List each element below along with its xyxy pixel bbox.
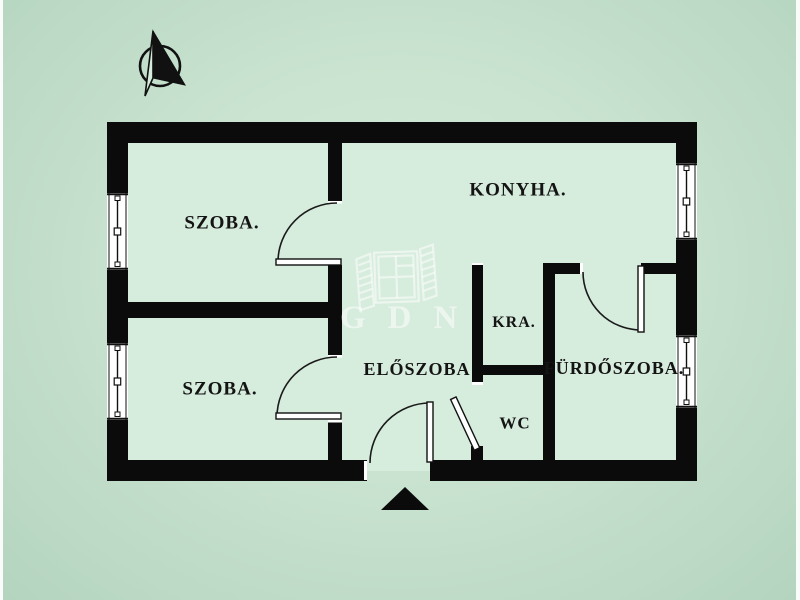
wall-hall-stub-c (328, 420, 342, 460)
image-edge-right (796, 0, 800, 600)
floorplan-image: SZOBA. KONYHA. KRA. ELŐSZOBA SZOBA. WC F… (0, 0, 800, 600)
wall-right-a (676, 122, 697, 163)
wall-cap (364, 461, 367, 480)
wall-bath-top-right (641, 263, 676, 274)
room-label-konyha: KONYHA. (469, 181, 566, 200)
floorplan-svg (0, 0, 800, 600)
wall-cap (328, 420, 342, 423)
door-leaf-szoba-lower (276, 413, 341, 419)
wall-right-b (676, 240, 697, 335)
wall-left-c (107, 420, 128, 481)
wall-bottom-right (430, 460, 697, 481)
entrance-triangle-icon (381, 487, 429, 510)
room-label-eloszoba: ELŐSZOBA (363, 360, 470, 378)
room-label-wc: WC (499, 415, 530, 432)
room-label-szoba-lower: SZOBA. (182, 380, 257, 399)
door-leaf-bathroom (638, 266, 644, 332)
wall-cap (472, 382, 483, 385)
north-arrow-icon (140, 31, 185, 96)
door-leaf-entrance (427, 402, 433, 462)
room-label-kamra: KRA. (492, 315, 536, 331)
wall-between-rooms (107, 302, 342, 318)
wall-hall-stub-b (328, 265, 342, 357)
window-symbol-left-lower (107, 343, 128, 420)
wall-bottom-left (107, 460, 367, 481)
window-symbol-left-upper (107, 193, 128, 270)
wall-cap (472, 263, 483, 265)
room-label-szoba-upper: SZOBA. (184, 214, 259, 233)
wall-pantry-wc-divider (478, 365, 548, 375)
wall-right-c (676, 408, 697, 481)
room-label-furdoszoba: FÜRDŐSZOBA. (544, 359, 685, 377)
wall-top (107, 122, 697, 143)
image-edge-left (0, 0, 3, 600)
door-leaf-szoba-upper (276, 259, 341, 265)
wall-left-a (107, 122, 128, 193)
wall-hall-stub-a (328, 143, 342, 203)
window-symbol-right-upper (676, 163, 697, 240)
